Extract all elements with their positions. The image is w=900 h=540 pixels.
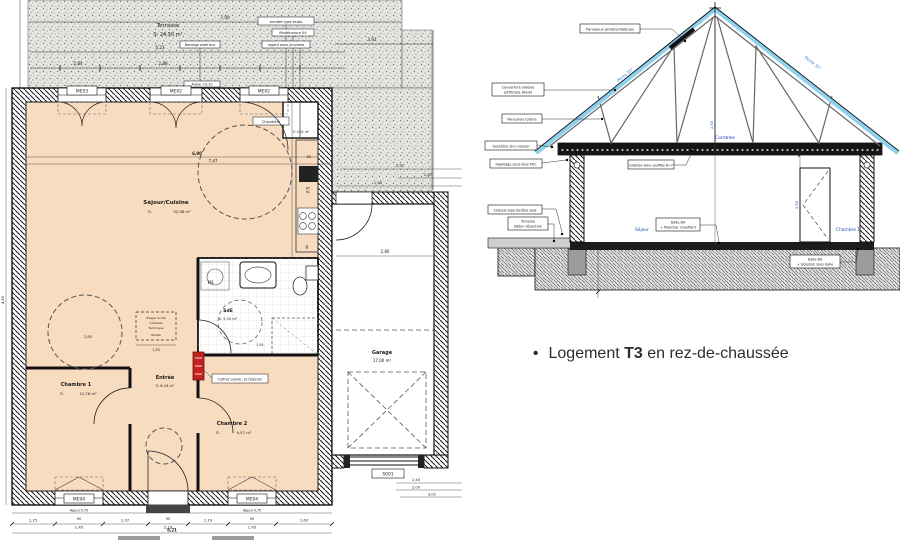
room-ch1-s: S:	[60, 391, 64, 396]
dim-h1: 2,50	[710, 120, 714, 129]
dim-c285: 2,85	[84, 335, 92, 339]
callout-terr2: Béton désactivé	[514, 225, 541, 229]
closet-area: S: 0,51 m²	[293, 130, 310, 134]
callout-c2: Modénature 04	[279, 31, 307, 35]
callout-cov2: artificielle 60x30	[504, 91, 532, 95]
room-garage-name: Garage	[372, 350, 393, 356]
room-sejour-name: Séjour/Cuisine	[143, 199, 189, 206]
dim-s193: 1,93	[256, 343, 263, 347]
window-me04b: ME04	[246, 497, 258, 503]
wc-tank-icon	[306, 266, 318, 280]
dim-top4: 2,88	[158, 61, 168, 66]
room-sde: ML SdE S: 5,10 m² 1,93	[198, 258, 318, 355]
dim-g1: 2,81	[396, 163, 405, 168]
ceiling-band	[558, 143, 882, 155]
callout-pare: Pare-pluie toiture	[507, 117, 536, 121]
caption-bold: T3	[624, 345, 643, 362]
label-chambre1: Chambre 1	[836, 227, 860, 233]
window-me04a: ME04	[73, 497, 85, 503]
entry-step	[146, 505, 190, 513]
callout-sousface: Habillage sous-face PVC	[495, 162, 537, 166]
caption-pre: Logement	[549, 345, 625, 362]
callout-dalle2b: + Isolation sous dalle	[797, 263, 833, 267]
trappe-l1: Trappe Accès	[145, 316, 166, 320]
dim-r1: 2,40	[412, 478, 421, 482]
dim-appui1: Appui 0,70	[70, 509, 88, 513]
floor-slab	[570, 242, 874, 250]
dim-b9: 1,45	[248, 525, 257, 530]
room-sde-area: S: 5,10 m²	[219, 317, 238, 321]
room-entree-name: Entrée	[156, 374, 175, 381]
window-me03: ME03	[76, 89, 88, 95]
section-svg: 2,50 2,50 Panneaux photovoltaïques Couve…	[480, 0, 900, 300]
callout-dalle2a: Dalle BA	[808, 258, 823, 262]
kitchen-appliance-icon	[299, 166, 318, 182]
front-door-opening	[148, 491, 188, 505]
callout-pv: Panneaux photovoltaïques	[586, 27, 634, 31]
caption-logement: •Logement T3 en rez-de-chaussée	[524, 327, 789, 363]
dim-g4: 2,80	[381, 249, 390, 254]
wc-bowl-icon	[293, 277, 307, 295]
section-door	[800, 168, 830, 242]
bullet-icon: •	[533, 345, 539, 362]
footing-right	[856, 249, 874, 275]
structure	[558, 143, 882, 250]
dim-b10: 1,63	[300, 518, 309, 523]
room-ch1-area: 12,76 m²	[79, 391, 97, 396]
room-ch2-area: 9,57 m²	[237, 430, 252, 435]
window-me02b: ME02	[258, 89, 270, 95]
trappe-dim: 60x60	[151, 333, 161, 337]
window-sg01: SG01	[382, 472, 394, 477]
room-sejour-area: 32,98 m²	[173, 209, 191, 214]
callout-isolation: Isolation laine soufflée R=7	[629, 163, 673, 167]
room-ch2-s: S:	[216, 430, 220, 435]
floor-plan-svg: Terrasse S: 24,50 m² 7,00 5,21 2,84 2,88…	[0, 0, 470, 540]
dim-trappe-below: 1,35	[152, 348, 160, 352]
terrace-slab	[488, 238, 572, 248]
callout-c4: Bardage extérieur	[185, 43, 216, 47]
room-sde-name: SdE	[223, 308, 233, 314]
dim-r2: 2,00	[412, 486, 421, 490]
dim-total: 8,21	[167, 528, 177, 533]
callout-chassis: Châssis type fenêtre bois	[494, 208, 537, 212]
room-ch2-name: Chambre 2	[217, 421, 248, 427]
room-ch1-name: Chambre 1	[61, 382, 92, 388]
garage: 2,80 Garage 17,00 m² SG01	[332, 192, 448, 478]
callout-c3: regard eaux pluviales	[268, 43, 305, 47]
callout-dalle1a: Dalle BA	[671, 221, 686, 225]
dim-left1: 4,49	[1, 295, 5, 304]
dim-b4: 1,37	[121, 518, 130, 523]
callout-coffret: Coffret plomb. et télécom	[218, 377, 264, 381]
dim-b8: 90	[250, 517, 254, 521]
callout-dalle1b: + Plancher chauffant	[660, 226, 697, 230]
callout-c5: Arase +0,10	[191, 83, 212, 87]
slide: Terrasse S: 24,50 m² 7,00 5,21 2,84 2,88…	[0, 0, 900, 540]
terrace-area: S: 24,50 m²	[153, 32, 182, 38]
footing-left	[568, 249, 586, 275]
dim-right-top: 3,91	[367, 37, 377, 42]
dim-b2: 90	[77, 517, 81, 521]
dim-h2: 2,50	[795, 200, 799, 209]
dim-in2: 7,47	[209, 159, 218, 164]
dim-r3: 3,02	[428, 493, 436, 497]
dim-b1: 1,25	[29, 518, 38, 523]
dim-top3: 2,84	[73, 61, 83, 66]
dim-b5: 95	[166, 517, 170, 521]
hob-icon	[298, 208, 318, 234]
dim-top1: 7,00	[220, 15, 230, 20]
dim-b7: 1,19	[204, 518, 213, 523]
label-sejour: Séjour	[635, 226, 649, 233]
label-ml: ML	[208, 280, 215, 286]
label-pente-right: Pente 35°	[804, 55, 823, 71]
dim-top2: 5,21	[155, 45, 165, 50]
dim-g3: 1,45	[374, 180, 383, 185]
callout-gouttiere: Gouttière zinc naturel	[493, 144, 530, 148]
label-refrigerateur: R	[305, 245, 308, 251]
room-garage-area: 17,00 m²	[373, 358, 392, 363]
trappe-l2: Combles	[150, 321, 163, 325]
window-me02a: ME02	[170, 89, 182, 95]
room-entree-area: S: 6,16 m²	[156, 384, 175, 388]
label-combles: Combles	[715, 135, 736, 141]
dim-appui2: Appui 0,70	[243, 509, 261, 513]
trappe-l3: Technique	[147, 326, 163, 330]
terrace-name: Terrasse	[156, 23, 180, 29]
callout-c1: enrobé type écolo	[270, 20, 302, 24]
sink-icon	[240, 262, 276, 288]
label-sv: S.V	[305, 187, 310, 194]
caption-post: en rez-de-chaussée	[643, 345, 789, 362]
dim-b3: 1,45	[75, 525, 84, 530]
callout-cov1: Couverture ardoise	[502, 86, 534, 90]
dim-g2: 1,87	[424, 172, 433, 177]
callout-terr1: Terrasse	[520, 220, 535, 224]
room-sejour-s: S:	[148, 209, 152, 214]
